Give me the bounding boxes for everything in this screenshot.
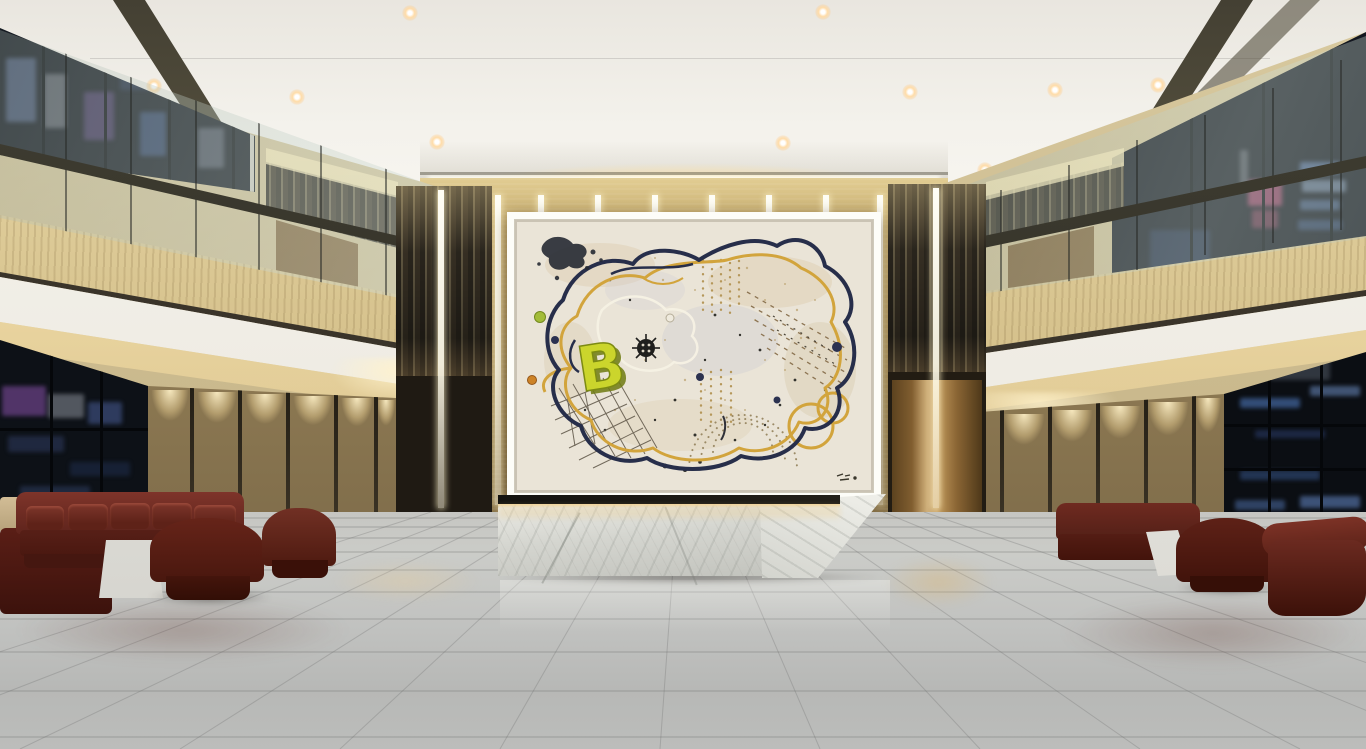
feature-wall-soffit-line <box>420 172 948 175</box>
window-mullion <box>50 350 53 512</box>
city-light <box>48 394 84 418</box>
ceiling-spotlight <box>429 134 445 150</box>
wall-uplight <box>340 398 374 464</box>
ceiling-spotlight <box>402 5 418 21</box>
ceiling-seam <box>90 58 1270 59</box>
floor-reflection-strip <box>595 515 601 551</box>
balustrade-mullion <box>1340 60 1342 230</box>
window-transom <box>0 428 148 431</box>
city-light <box>20 486 90 498</box>
slat-column-left-shade <box>396 186 492 376</box>
wall-uplight <box>196 392 238 464</box>
floor-reflection-strip <box>652 515 658 551</box>
ceiling-spotlight <box>1047 82 1063 98</box>
floor-reflection-warm-right <box>884 556 994 608</box>
wall-uplight <box>150 390 190 462</box>
niche-left <box>396 376 492 512</box>
wall-uplight <box>1050 410 1094 484</box>
floor-reflection-strip <box>766 515 772 551</box>
window-mullion <box>1320 356 1323 516</box>
ceiling-spotlight <box>1150 77 1166 93</box>
floor-reflection-warm-left <box>330 560 480 602</box>
painting-wheel <box>632 334 660 362</box>
abstract-painting-svg: B B <box>515 220 873 492</box>
floor-reflection-sofa-left <box>15 598 350 662</box>
wall-light-strip <box>438 190 444 508</box>
window-mullion <box>100 364 103 512</box>
ceiling-spotlight <box>902 84 918 100</box>
floor-reflection-sofa-right <box>1060 598 1366 668</box>
city-light <box>1300 496 1360 508</box>
city-light <box>1235 500 1285 510</box>
wall-divider <box>238 390 242 512</box>
wall-uplight <box>244 394 286 464</box>
ceiling-spotlight <box>289 89 305 105</box>
wall-divider <box>1000 400 1004 512</box>
balustrade-mullion <box>1204 115 1206 255</box>
wall-uplight <box>1146 402 1190 480</box>
window-transom <box>1224 424 1366 427</box>
city-light <box>1240 470 1320 480</box>
lobby-scene: B B <box>0 0 1366 749</box>
city-light <box>8 436 64 452</box>
wall-uplight <box>1194 398 1222 478</box>
city-light <box>1255 430 1325 438</box>
balustrade-mullion <box>1272 88 1274 243</box>
balustrade-mullion <box>1000 190 1002 305</box>
floor-reflection-strip <box>823 515 829 551</box>
window-transom <box>1224 468 1366 471</box>
wall-divider <box>374 396 378 512</box>
wall-light-strip <box>933 188 939 508</box>
wall-divider <box>1048 398 1052 512</box>
artwork-canvas: B B <box>514 219 874 493</box>
balustrade-mullion <box>65 40 67 260</box>
ceiling-spotlight <box>775 135 791 151</box>
ceiling-spotlight <box>815 4 831 20</box>
wall-uplight <box>1002 414 1046 486</box>
floor-reflection-strip <box>709 515 715 551</box>
wall-uplight <box>292 396 334 464</box>
city-light <box>88 402 122 424</box>
wall-light-strip <box>495 195 501 505</box>
city-light <box>2 386 46 416</box>
wall-divider <box>1096 396 1100 512</box>
city-light <box>1310 386 1360 396</box>
wall-divider <box>1192 396 1196 512</box>
wall-divider <box>286 392 290 512</box>
wall-uplight <box>1098 406 1142 482</box>
window-mullion <box>1268 360 1271 515</box>
floor-reflection-desk <box>500 580 890 632</box>
wall-divider <box>1144 396 1148 512</box>
wall-uplight <box>376 400 396 460</box>
floor-reflection-strip <box>538 515 544 551</box>
wall-divider <box>190 388 194 512</box>
wall-divider <box>334 394 338 512</box>
